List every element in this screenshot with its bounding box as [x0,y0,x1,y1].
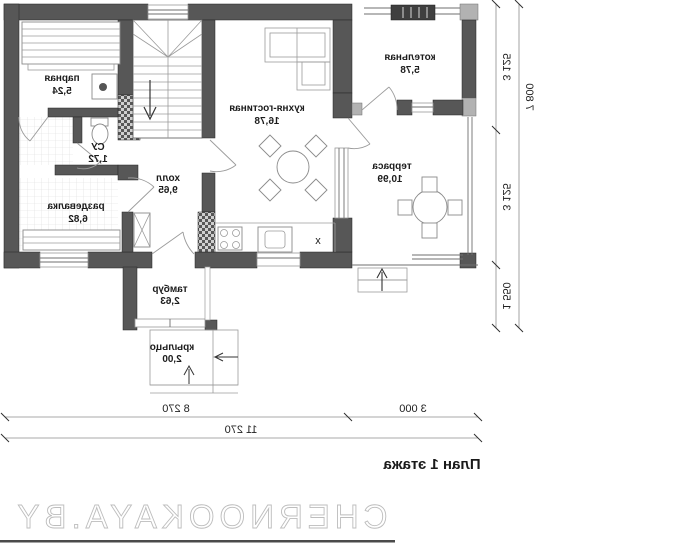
plan-title: План 1 этажа [383,456,481,473]
sauna-bench [22,22,120,70]
terrace-railing [352,117,478,265]
dressing-room-bench [23,230,120,250]
dim-side-bottom: 1 550 [500,282,512,310]
room-label-wc: СУ [91,142,105,153]
room-area-sauna: 5,24 [52,86,72,97]
dim-bottom-total: 11 270 [225,424,258,436]
room-area-boiler: 5,78 [400,65,420,76]
room-label-porch: крыльцо [150,342,194,353]
cabinet-mark: x [315,235,321,247]
dim-side-middle: 3 125 [500,183,512,211]
toilet [91,118,108,144]
dim-side-total: 7 800 [523,83,535,111]
room-area-vestibule: 2,63 [160,296,180,307]
staircase [133,20,202,138]
room-label-sauna: парная [44,73,79,84]
room-area-kitchen: 16,78 [254,116,279,127]
dining-set [259,135,327,201]
room-label-dressing: раздевалка [47,201,105,212]
vent-shaft [134,213,150,247]
floor-plan-svg: x [0,0,700,549]
footer-rule [0,540,395,543]
sauna-heater [92,74,117,99]
corner-sofa [265,28,330,90]
dim-side-top: 3 125 [500,53,512,81]
room-label-kitchen: кухня-гостиная [229,103,305,114]
room-label-hall: холл [156,173,180,184]
room-area-porch: 2,00 [162,354,182,365]
room-label-boiler: котельная [384,52,435,63]
room-area-dressing: 6,82 [68,214,88,225]
terrace-table-set [398,177,462,238]
room-area-wc: 1,72 [88,154,108,165]
room-area-terrace: 10,99 [377,174,402,185]
boiler-unit [391,5,435,20]
kitchen-counter: x [215,223,335,252]
room-label-terrace: терраса [372,161,412,172]
dim-bottom-left: 8 270 [162,403,190,415]
floor-plan: x [0,0,700,549]
room-label-vestibule: тамбур [152,283,187,295]
room-area-hall: 9,65 [158,185,178,196]
watermark: CHERNOOKAYA.BY [12,498,387,535]
terrace-steps [358,268,407,292]
dim-bottom-right: 3 000 [399,403,427,415]
